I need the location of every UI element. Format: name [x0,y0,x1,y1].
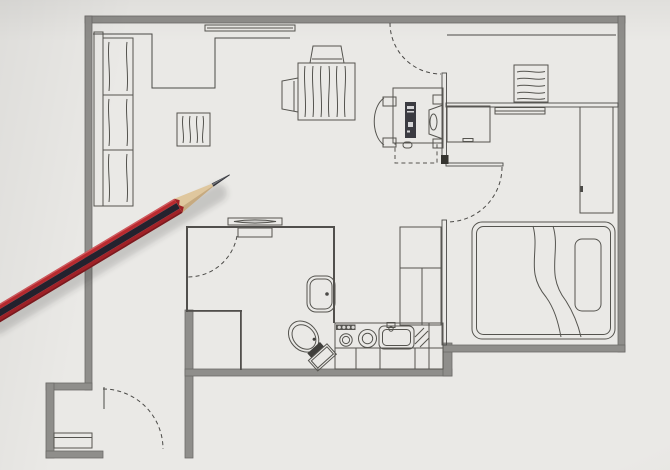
dresser [514,65,548,102]
pouf [177,113,210,146]
window-sill [205,25,295,31]
wardrobe [580,107,613,213]
bathroom-sink [307,276,335,312]
sofa [94,32,133,206]
floorplan-photo [0,0,670,470]
dining-set [282,46,355,120]
computer-workstation [374,88,443,163]
kitchen-tall-units [400,227,441,325]
doormat [54,433,92,448]
bedroom-desk [447,106,490,142]
pencil-shadow [0,181,230,338]
floorplan-svg [0,0,670,470]
kitchen-counter [335,323,443,370]
bed [472,222,615,339]
bedroom-shelf [495,108,545,115]
toilet [282,315,337,372]
